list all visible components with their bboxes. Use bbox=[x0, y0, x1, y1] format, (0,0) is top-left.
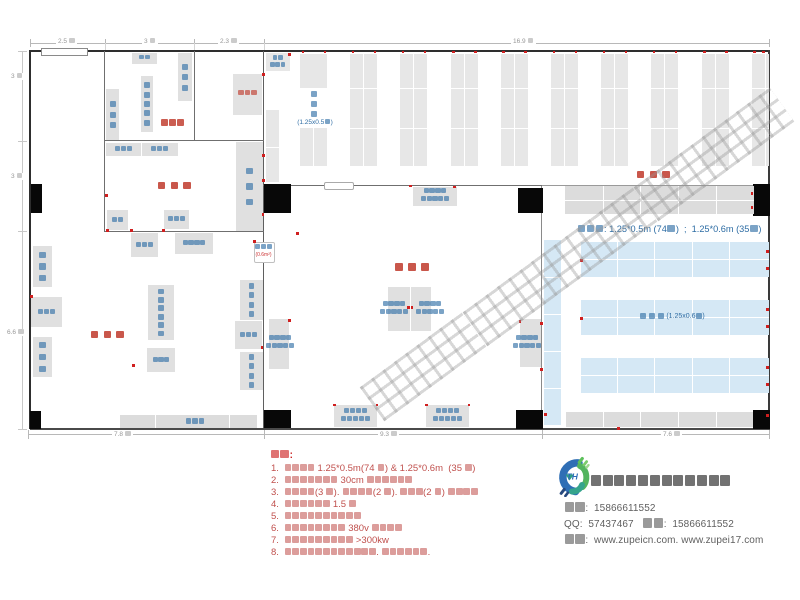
svg-text:TH: TH bbox=[567, 472, 579, 482]
